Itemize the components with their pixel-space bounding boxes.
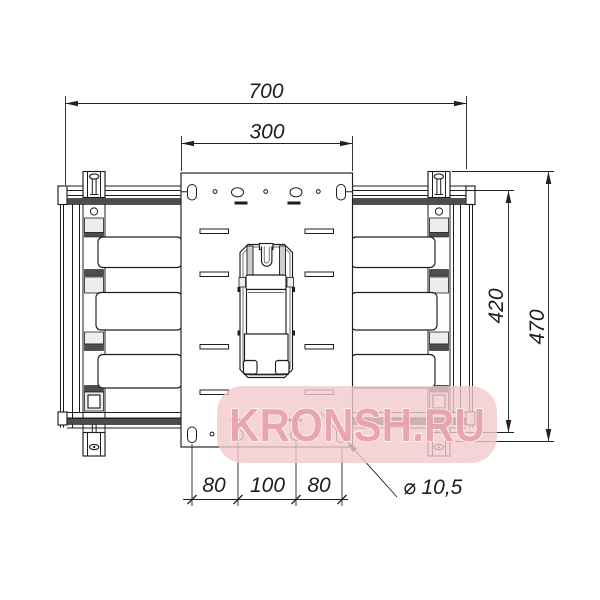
rail-dark-band [67, 199, 181, 205]
clamp-screw-head [90, 174, 99, 179]
slot-hole [188, 427, 197, 443]
rail-end-cap [58, 412, 67, 425]
top-clamp [83, 172, 105, 198]
arm-bar [98, 237, 182, 268]
watermark-text: KRONSH.RU [229, 399, 485, 451]
arm-bar [98, 355, 182, 389]
plate-slot [305, 272, 334, 277]
plate-slot [200, 345, 229, 350]
dim-300-label: 300 [249, 121, 284, 144]
side-bolt [287, 278, 294, 288]
rail-dark-band [67, 419, 181, 425]
dim-80-right-label: 80 [307, 474, 331, 497]
tilt-mechanism [238, 244, 296, 378]
plate-slot [200, 390, 229, 395]
drawing-svg: 700 300 420 470 80 100 80 [0, 0, 600, 600]
column-hole [90, 208, 97, 215]
dim-700-label: 700 [248, 80, 283, 103]
rail-end-cap [58, 186, 67, 205]
watermark: KRONSH.RU [217, 386, 497, 463]
dim-diameter-label: ⌀ 10,5 [403, 476, 463, 499]
technical-drawing: 700 300 420 470 80 100 80 [0, 0, 600, 600]
plate-slot [200, 272, 229, 277]
plate-slot [305, 345, 334, 350]
slot-hole [188, 185, 197, 201]
left-arm-assembly [58, 172, 182, 457]
arm-bar [96, 293, 182, 331]
dim-470-label: 470 [526, 309, 549, 344]
mech-foot [244, 361, 258, 375]
bottom-clamp [83, 425, 105, 457]
plate-slot [305, 229, 334, 234]
oval-hole [290, 188, 302, 197]
dim-420-label: 420 [485, 288, 508, 323]
side-bolt [239, 278, 246, 288]
dim-80-left-label: 80 [202, 474, 226, 497]
oval-hole [232, 188, 244, 197]
dim-100-label: 100 [250, 474, 285, 497]
mech-foot [276, 361, 290, 375]
slot-hole [337, 185, 346, 201]
dimension-plate-width: 300 [182, 121, 353, 172]
plate-slot [200, 229, 229, 234]
